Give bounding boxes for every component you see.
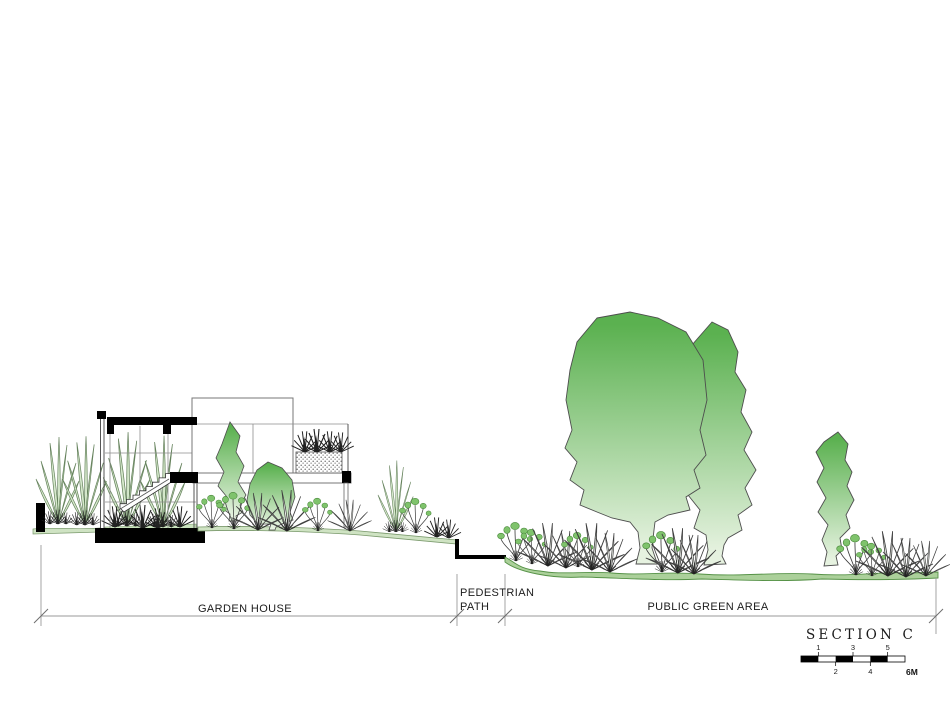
scale-label-3: 3 [851, 643, 855, 652]
planter-plant [328, 432, 354, 452]
upper-volume [192, 398, 293, 473]
roof-planter [296, 452, 342, 473]
base-slab-cut [95, 528, 205, 543]
shrub-spiky [328, 500, 372, 531]
roof-beam-cut [163, 425, 171, 434]
scale-unit-label: 6M [906, 667, 918, 677]
scale-segment-black [870, 656, 887, 662]
pedestrian-path-label-line2: PATH [460, 601, 489, 613]
scale-label-5: 5 [886, 643, 890, 652]
pedestrian-path-label-line1: PEDESTRIAN [460, 587, 534, 599]
scale-label-4: 4 [868, 667, 872, 676]
scale-label-1: 1 [816, 643, 820, 652]
stair-landing-cut [170, 472, 198, 483]
roof-beam-cut [107, 425, 114, 434]
path-step-cut [457, 539, 506, 557]
scale-segment-black [801, 656, 818, 662]
scale-segment-black [836, 656, 853, 662]
scale-bar: 1 3 5 2 4 6M [801, 643, 918, 677]
wall-cap-cut [97, 411, 106, 419]
annotations: GARDEN HOUSE PEDESTRIAN PATH PUBLIC GREE… [34, 545, 943, 643]
left-yard [33, 436, 106, 534]
roof-slab-cut [107, 417, 197, 425]
tall-grass-clump [63, 436, 107, 525]
canvas: GARDEN HOUSE PEDESTRIAN PATH PUBLIC GREE… [0, 0, 950, 721]
scale-label-2: 2 [834, 667, 838, 676]
shrub-allium [302, 498, 332, 531]
public-green-area [498, 312, 950, 581]
public-green-area-label: PUBLIC GREEN AREA [647, 601, 768, 613]
section-title: SECTION C [806, 627, 916, 643]
garden-house-label: GARDEN HOUSE [198, 603, 292, 615]
balcony-edge-cut [342, 471, 351, 483]
section-c-drawing: GARDEN HOUSE PEDESTRIAN PATH PUBLIC GREE… [0, 0, 950, 721]
